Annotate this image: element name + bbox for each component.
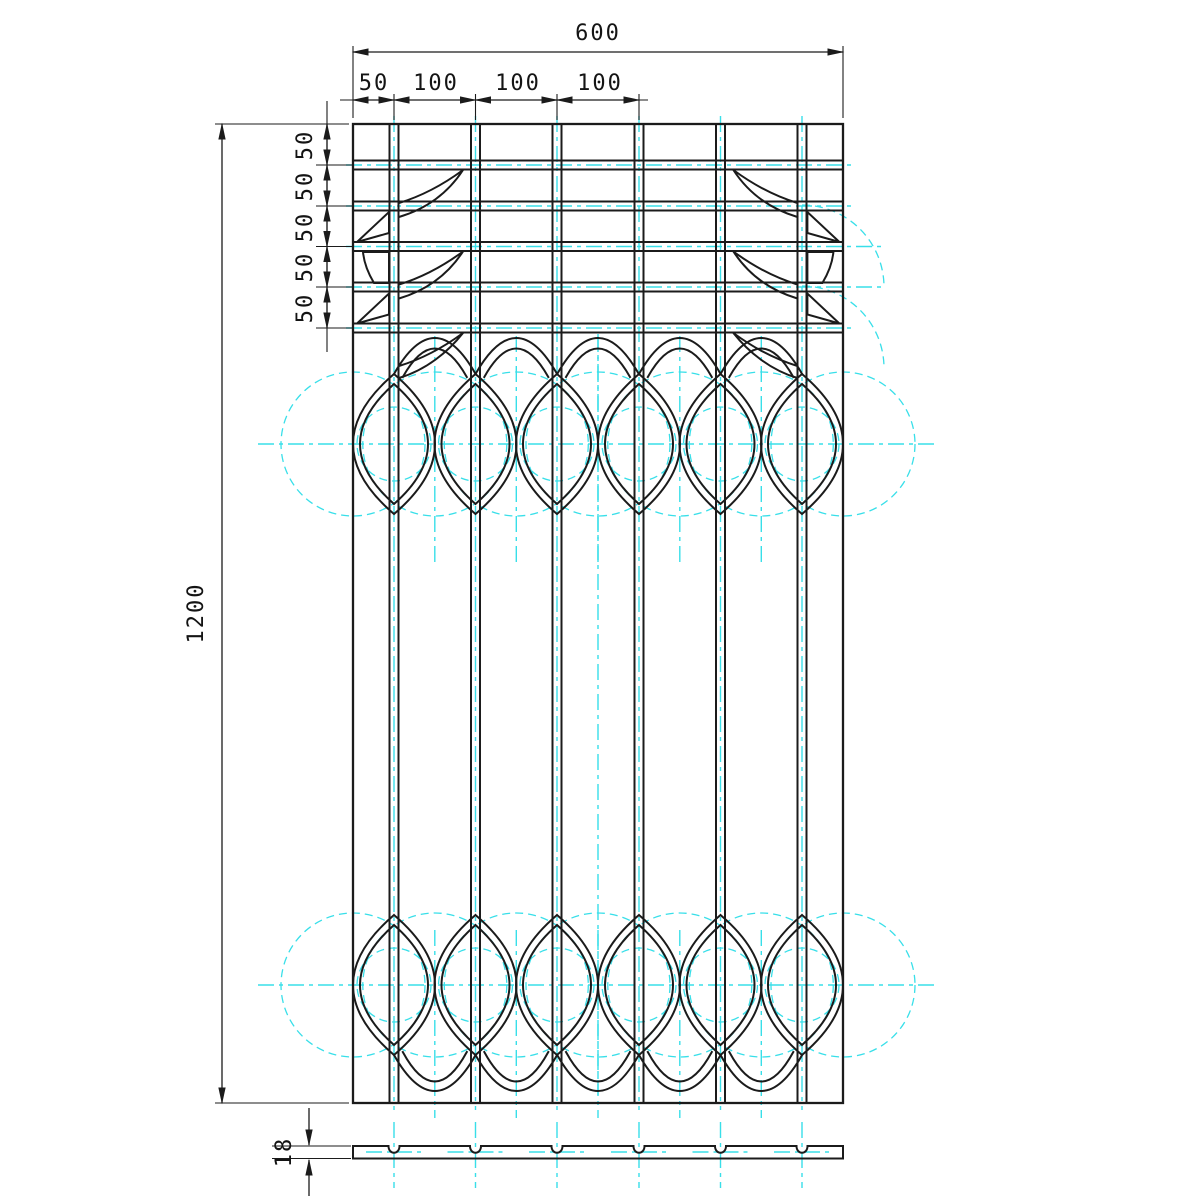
dim-left-chain: 50 50 50 50 50: [293, 101, 327, 352]
dim-top-chain-label-1: 50: [359, 71, 390, 96]
dim-overall-height-label: 1200: [184, 583, 209, 644]
dim-top-chain-label-2: 100: [413, 71, 459, 96]
cad-drawing: 600 50 100 100 100 50 50 50 50 50: [0, 0, 1200, 1200]
dim-left-chain-label-2: 50: [293, 171, 318, 202]
dim-thickness-label: 18: [272, 1137, 297, 1168]
dim-left-chain-label-5: 50: [293, 293, 318, 324]
dim-left-chain-label-4: 50: [293, 252, 318, 283]
dim-left-chain-label-1: 50: [293, 130, 318, 161]
dim-overall-width-label: 600: [575, 21, 621, 46]
dim-top-chain-label-3: 100: [495, 71, 541, 96]
construction-lines: [258, 116, 938, 1188]
dim-thickness: 18: [272, 1108, 309, 1196]
dim-overall-height: 1200: [184, 124, 222, 1103]
dim-overall-width: 600: [353, 21, 843, 52]
dim-top-chain: 50 100 100 100: [340, 71, 648, 100]
panel-bottom-view: [353, 1146, 843, 1159]
dim-left-chain-label-3: 50: [293, 212, 318, 243]
drawing-canvas: 600 50 100 100 100 50 50 50 50 50: [0, 0, 1200, 1200]
dim-top-chain-label-4: 100: [577, 71, 623, 96]
